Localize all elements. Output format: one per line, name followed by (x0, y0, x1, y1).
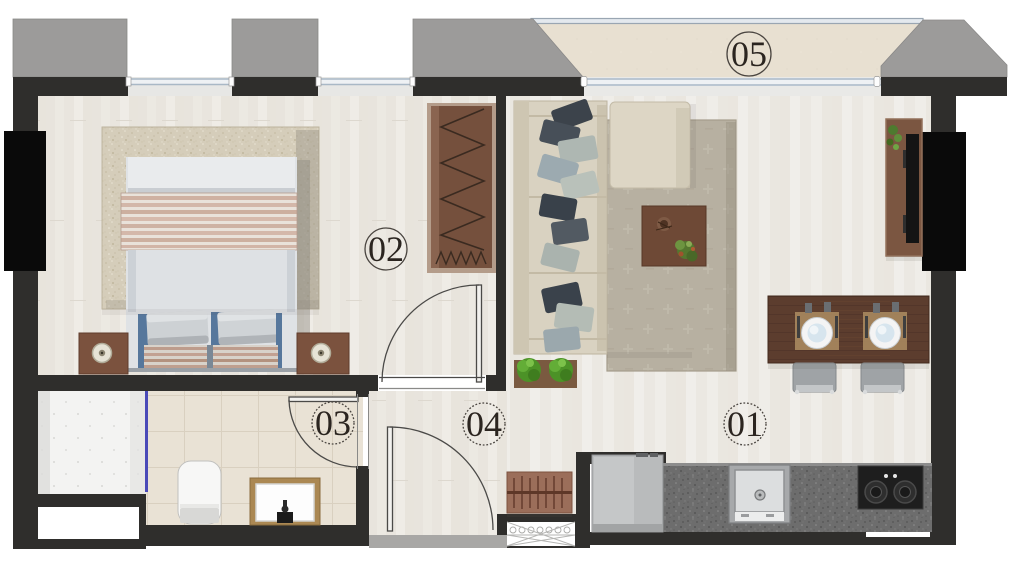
svg-text:05: 05 (731, 34, 767, 74)
svg-text:04: 04 (466, 404, 502, 444)
svg-text:03: 03 (315, 403, 351, 443)
svg-text:01: 01 (727, 404, 763, 444)
svg-text:02: 02 (368, 229, 404, 269)
